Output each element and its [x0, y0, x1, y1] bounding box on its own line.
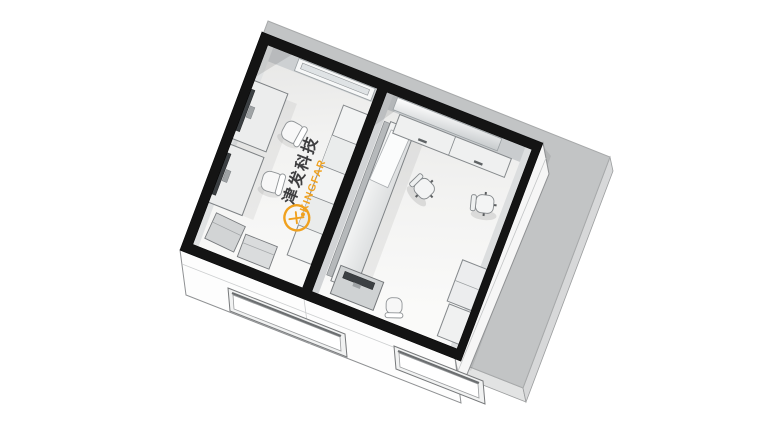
chair-seat — [475, 194, 495, 214]
chair-back — [470, 194, 477, 211]
visitor-chair — [385, 298, 403, 319]
floorplan-render: 津发科技 KINGFAR — [0, 0, 758, 429]
chair-back — [385, 313, 403, 318]
render-stage: 津发科技 KINGFAR — [0, 0, 758, 429]
chair-seat — [386, 298, 402, 314]
